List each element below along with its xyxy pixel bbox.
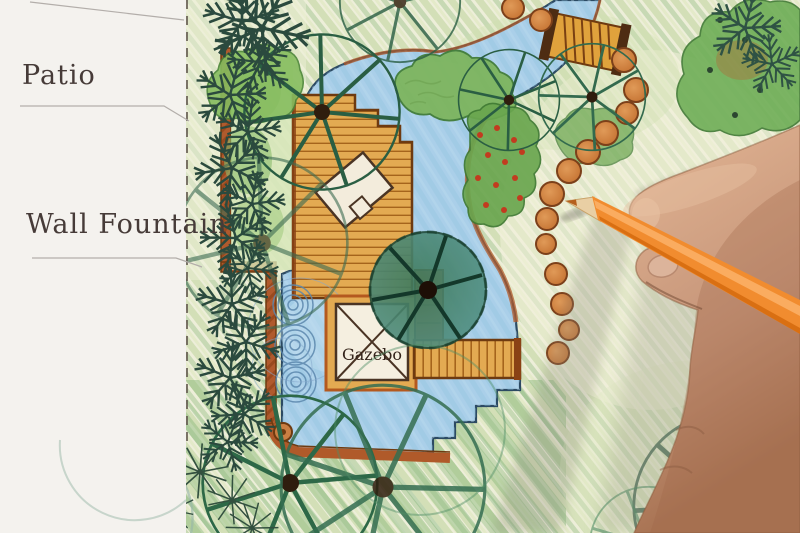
landscape-plan-scene: Gazebo [0, 0, 800, 533]
stepping-stone [616, 102, 638, 124]
stepping-stone [545, 263, 567, 285]
stepping-stone [540, 182, 564, 206]
stepping-stone [594, 121, 618, 145]
stepping-stone [536, 234, 556, 254]
stepping-stone [536, 208, 558, 230]
photo-landscape-plan: Gazebo [0, 0, 800, 533]
gazebo-label: Gazebo [342, 345, 402, 364]
tree-canopy [370, 232, 486, 348]
stepping-stone [502, 0, 524, 19]
patio-label: Patio [22, 60, 96, 91]
stepping-stone [530, 9, 552, 31]
stepping-stone [612, 48, 636, 72]
stepping-stone [576, 140, 600, 164]
stepping-stone [557, 159, 581, 183]
wall-fountain-label: Wall Fountain [26, 209, 228, 240]
